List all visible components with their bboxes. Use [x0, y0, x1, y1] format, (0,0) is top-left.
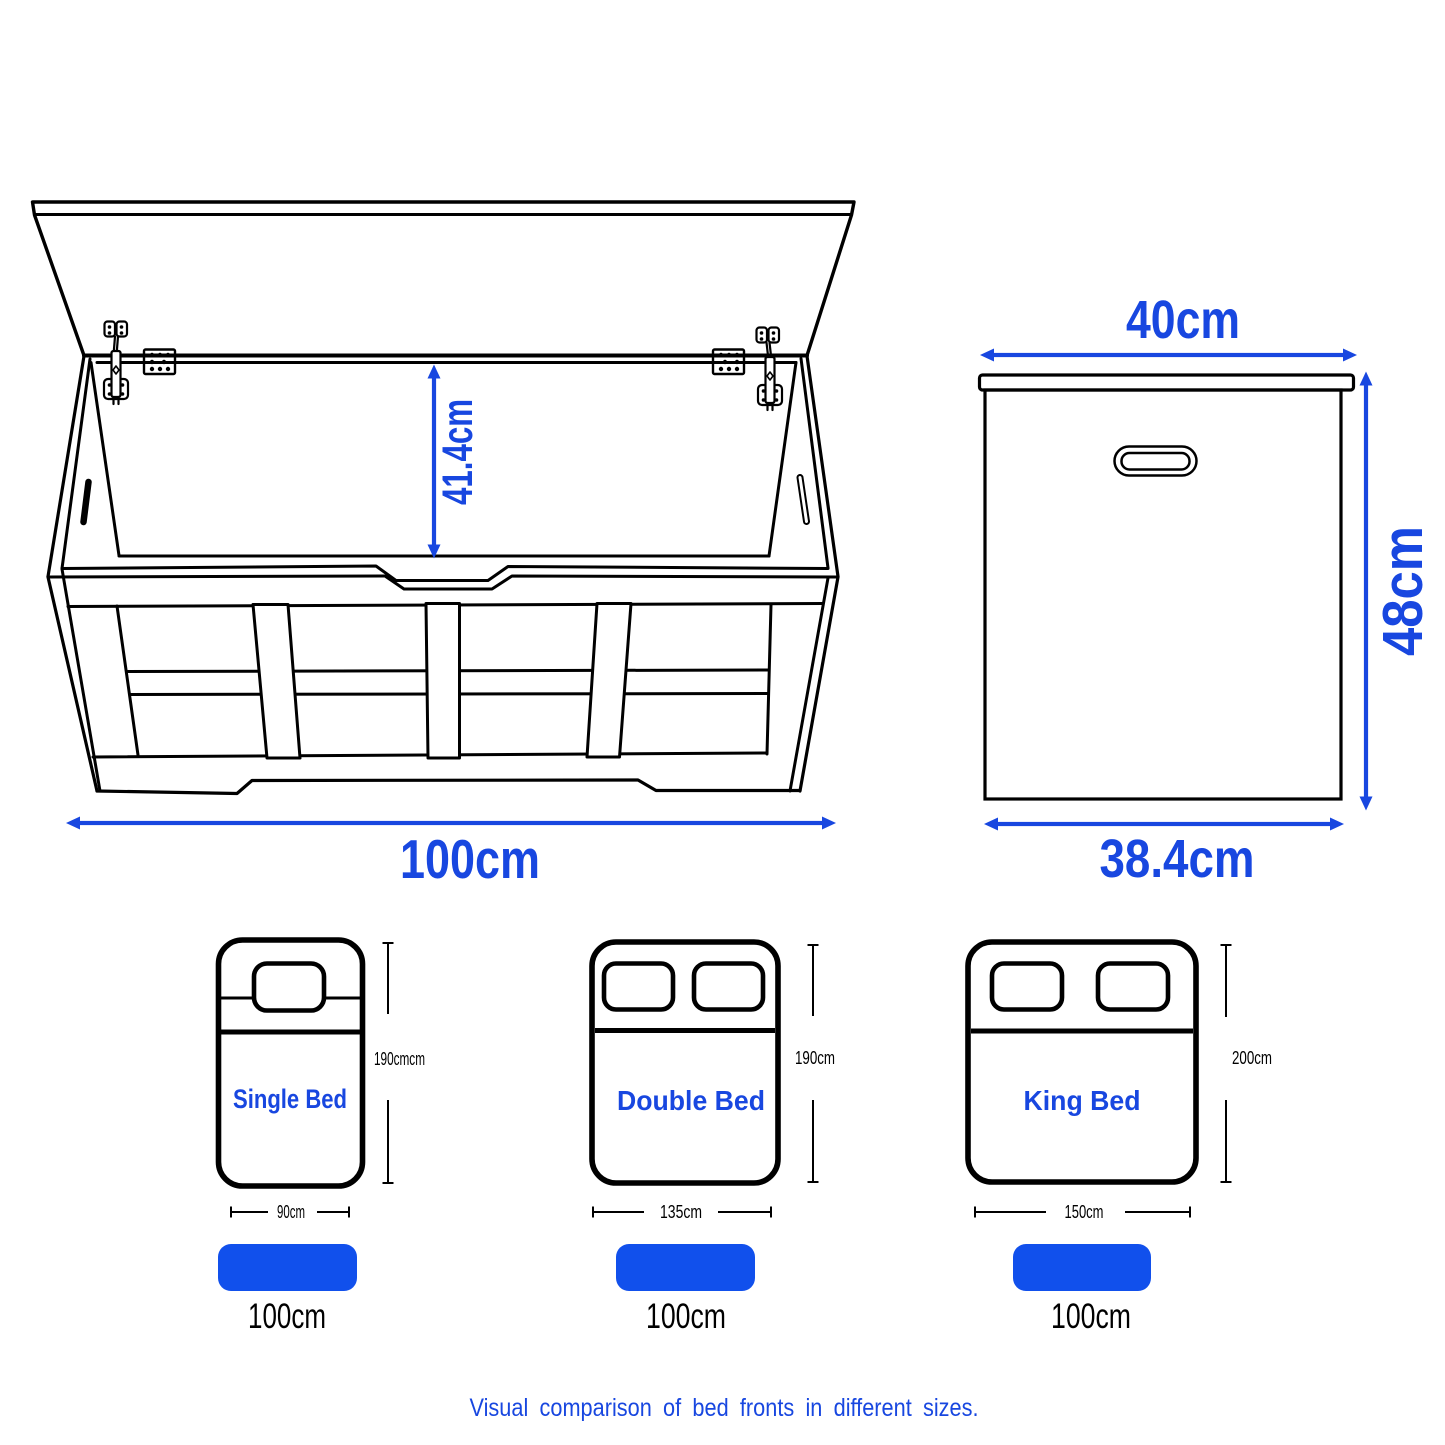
svg-text:41.4cm: 41.4cm: [434, 399, 482, 505]
svg-text:90cm: 90cm: [277, 1202, 305, 1222]
svg-text:190cmcm: 190cmcm: [374, 1049, 425, 1069]
svg-text:100cm: 100cm: [1051, 1297, 1131, 1336]
svg-text:100cm: 100cm: [248, 1297, 326, 1336]
svg-text:40cm: 40cm: [1126, 290, 1240, 350]
svg-text:38.4cm: 38.4cm: [1100, 829, 1255, 889]
svg-text:100cm: 100cm: [646, 1297, 726, 1336]
svg-text:135cm: 135cm: [660, 1202, 702, 1222]
svg-text:200cm: 200cm: [1232, 1048, 1272, 1068]
svg-text:Visual comparison of bed front: Visual comparison of bed fronts in diffe…: [470, 1394, 979, 1422]
svg-text:King Bed: King Bed: [1024, 1085, 1141, 1116]
svg-text:48cm: 48cm: [1371, 526, 1435, 656]
svg-text:190cm: 190cm: [795, 1048, 835, 1068]
svg-text:Single Bed: Single Bed: [233, 1084, 347, 1114]
svg-text:Double Bed: Double Bed: [617, 1085, 765, 1116]
svg-text:150cm: 150cm: [1065, 1202, 1104, 1222]
svg-text:100cm: 100cm: [400, 828, 540, 890]
